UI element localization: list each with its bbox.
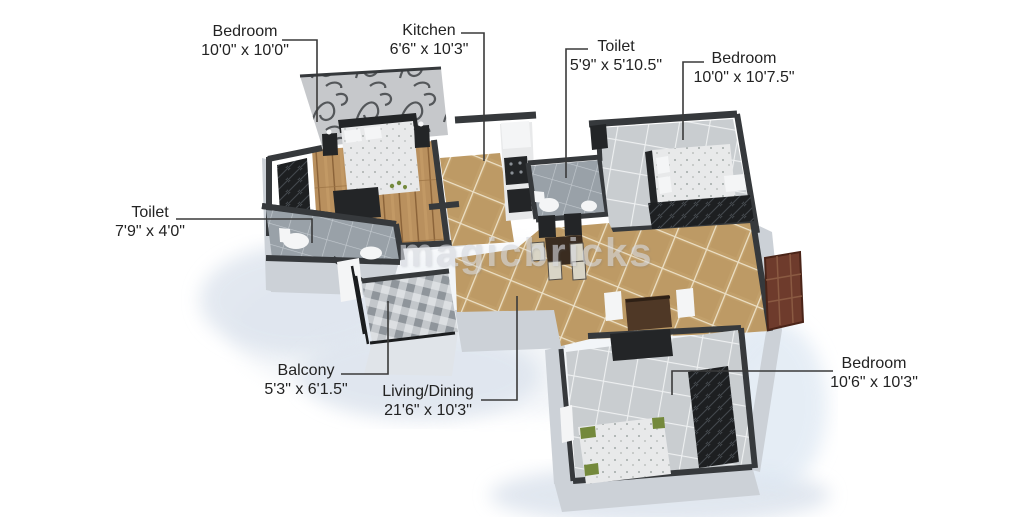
label-bedroom-top-right: Bedroom 10'0" x 10'7.5" bbox=[693, 49, 794, 87]
cabinet bbox=[507, 188, 532, 213]
toilet-floor bbox=[530, 160, 607, 219]
toilet-bowl bbox=[283, 233, 309, 249]
wardrobe bbox=[590, 124, 608, 150]
room-name: Toilet bbox=[570, 37, 662, 56]
label-kitchen: Kitchen 6'6" x 10'3" bbox=[390, 21, 469, 59]
room-dims: 10'0" x 10'7.5" bbox=[693, 68, 794, 87]
label-toilet-left: Toilet 7'9" x 4'0" bbox=[115, 203, 185, 241]
room-name: Kitchen bbox=[390, 21, 469, 40]
nightstand bbox=[322, 133, 338, 156]
sink bbox=[581, 201, 597, 212]
room-name: Bedroom bbox=[830, 354, 918, 373]
room-name: Balcony bbox=[264, 361, 347, 380]
room-name: Bedroom bbox=[693, 49, 794, 68]
fridge bbox=[501, 121, 531, 149]
room-dims: 7'9" x 4'0" bbox=[115, 222, 185, 241]
label-bedroom-top-left: Bedroom 10'0" x 10'0" bbox=[201, 22, 289, 60]
room-dims: 10'6" x 10'3" bbox=[830, 373, 918, 392]
toilet-bowl bbox=[539, 198, 559, 212]
room-bedroom-top-right bbox=[589, 114, 757, 233]
room-dims: 21'6" x 10'3" bbox=[382, 401, 474, 420]
room-dims: 5'9" x 5'10.5" bbox=[570, 56, 662, 75]
room-dims: 6'6" x 10'3" bbox=[390, 40, 469, 59]
room-name: Bedroom bbox=[201, 22, 289, 41]
entrance-door bbox=[765, 252, 803, 330]
pillow bbox=[658, 176, 672, 194]
pillow-green bbox=[652, 417, 665, 429]
stove bbox=[504, 156, 529, 185]
pillow bbox=[364, 126, 382, 140]
watermark: magicbricks bbox=[398, 231, 653, 276]
pillow-green bbox=[580, 426, 596, 439]
pillow bbox=[656, 156, 670, 174]
bench bbox=[724, 174, 746, 192]
balcony-floor bbox=[362, 272, 458, 342]
console-table bbox=[610, 329, 673, 361]
room-dims: 10'0" x 10'0" bbox=[201, 41, 289, 60]
label-toilet-top: Toilet 5'9" x 5'10.5" bbox=[570, 37, 662, 75]
room-name: Toilet bbox=[115, 203, 185, 222]
side-table bbox=[676, 288, 695, 318]
pillow-green bbox=[584, 463, 599, 476]
pillow bbox=[344, 129, 362, 143]
door bbox=[560, 405, 574, 443]
nightstand bbox=[414, 125, 430, 148]
floor-plan-image: Bedroom 10'0" x 10'0" Kitchen 6'6" x 10'… bbox=[0, 0, 1024, 517]
sink bbox=[360, 247, 382, 260]
side-table bbox=[604, 291, 623, 321]
room-toilet-top bbox=[528, 157, 609, 220]
label-living-dining: Living/Dining 21'6" x 10'3" bbox=[382, 382, 474, 420]
label-balcony: Balcony 5'3" x 6'1.5" bbox=[264, 361, 347, 399]
room-bedroom-bottom bbox=[560, 328, 755, 484]
room-dims: 5'3" x 6'1.5" bbox=[264, 380, 347, 399]
room-name: Living/Dining bbox=[382, 382, 474, 401]
label-bedroom-bottom: Bedroom 10'6" x 10'3" bbox=[830, 354, 918, 392]
